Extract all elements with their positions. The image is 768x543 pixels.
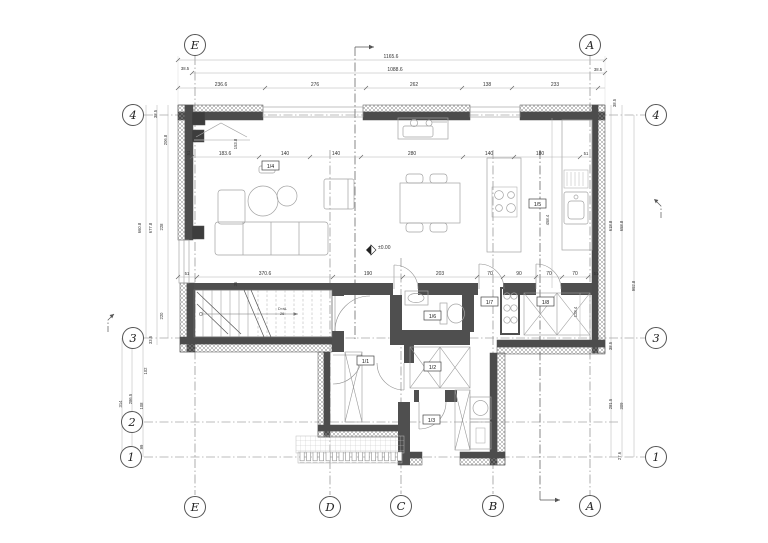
stair-break-lines [197, 290, 271, 337]
closet-x [455, 390, 470, 450]
room-label-bath: 1/6 [424, 311, 441, 320]
toilet [440, 303, 465, 324]
grid-bubble-bottom-D: D [320, 497, 341, 518]
floorplan-sheet: ±0.00 D×śL 26 1/4 1/5 1/6 1/7 1/8 1/1 1/… [0, 0, 768, 543]
dim: 153.8 [233, 138, 238, 149]
dim: 262 [410, 82, 419, 88]
room-label-hall2: 1/7 [481, 297, 498, 306]
dim: 35 [233, 281, 238, 286]
dim: 233 [551, 82, 560, 88]
grid-bubble-left-1: 1 [121, 447, 142, 468]
dim: 180 [536, 151, 545, 157]
grid-bubble-bottom-A: A [580, 496, 601, 517]
cooktop-burner [495, 191, 504, 200]
floor-plan-canvas: ±0.00 D×śL 26 1/4 1/5 1/6 1/7 1/8 1/1 1/… [0, 0, 768, 543]
dim: 38.5 [181, 66, 190, 71]
door-stair-hall [335, 296, 370, 331]
dim: 280 [408, 151, 417, 157]
grid-bubble-top-E: E [185, 35, 206, 56]
wall-top [178, 105, 605, 120]
svg-text:1: 1 [127, 450, 134, 464]
room-label-utility: 1/3 [423, 415, 440, 424]
svg-text:1/1: 1/1 [362, 359, 369, 365]
svg-text:1/6: 1/6 [429, 314, 436, 320]
dim: 140 [485, 151, 494, 157]
room-label-living: 1/4 [262, 161, 279, 170]
dim: 658.8 [619, 220, 624, 231]
grid-bubble-left-4: 4 [123, 105, 144, 126]
stairs [194, 290, 332, 337]
dim: 660.8 [137, 222, 142, 233]
room-label-entry: 1/1 [357, 356, 374, 365]
wall-entry-corr [404, 345, 414, 363]
svg-text:E: E [190, 500, 200, 514]
wall-rooms-top-2 [418, 283, 478, 295]
svg-text:1/7: 1/7 [486, 300, 493, 306]
dim: 203 [436, 271, 445, 277]
grid-bubble-bottom-E: E [185, 497, 206, 518]
grid-bubble-right-3: 3 [646, 328, 667, 349]
cooktop-burner [508, 192, 515, 199]
wall-right [592, 105, 605, 353]
svg-text:4: 4 [128, 108, 136, 122]
svg-text:2: 2 [127, 415, 135, 429]
svg-text:B: B [488, 499, 497, 513]
svg-text:1/5: 1/5 [534, 202, 541, 208]
grid-bubble-top-A: A [580, 35, 601, 56]
svg-text:A: A [585, 499, 594, 513]
svg-text:3: 3 [129, 331, 136, 345]
dim: 370.6 [259, 271, 272, 277]
svg-text:3: 3 [652, 331, 659, 345]
grid-bubble-right-1: 1 [646, 447, 667, 468]
svg-text:1/3: 1/3 [428, 418, 435, 424]
dim: 38.5 [153, 109, 158, 118]
dim: 276 [311, 82, 320, 88]
dim: 309 [619, 402, 624, 410]
grid-bubble-bottom-B: B [483, 496, 504, 517]
grid-bubble-right-4: 4 [646, 105, 667, 126]
dim: 128.4 [573, 306, 578, 317]
room-label-corridor: 1/2 [424, 362, 441, 371]
detail-arrow-left [108, 314, 114, 332]
dim: 314 [118, 400, 123, 408]
dim: 220 [159, 312, 164, 320]
dim: 27.6 [617, 451, 622, 460]
wall-rooms-top-1 [344, 283, 393, 295]
cooktop-burner [507, 204, 516, 213]
grid-bubble-bottom-C: C [391, 496, 412, 517]
dim: 90 [516, 271, 522, 277]
stair-note-1: D×śL [278, 307, 287, 311]
dim: 677.8 [148, 222, 153, 233]
dim: 33.5 [148, 335, 153, 344]
washer [470, 397, 491, 449]
dim: 51 [584, 151, 589, 156]
stair-note-2: 26 [280, 312, 284, 316]
dim: 190 [364, 271, 373, 277]
detail-arrow-right [654, 199, 661, 218]
svg-text:4: 4 [651, 108, 659, 122]
dim: 51 [594, 271, 599, 276]
svg-text:1/2: 1/2 [429, 365, 436, 371]
level-marker: ±0.00 [366, 245, 391, 255]
dim: 618.8 [608, 220, 613, 231]
dim: 38.5 [612, 98, 617, 107]
dim: 99 [139, 444, 144, 449]
dim: 38.5 [594, 67, 603, 72]
window-top-left [263, 107, 363, 117]
svg-text:1: 1 [652, 450, 659, 464]
level-value: ±0.00 [378, 245, 391, 251]
svg-text:A: A [585, 38, 594, 52]
dim: 140 [281, 151, 290, 157]
wall-bottom-right [497, 340, 605, 354]
wall-stair-top [194, 283, 332, 290]
dim: 1165.6 [384, 54, 399, 60]
wall-bath-bottom [390, 330, 470, 345]
window-left [179, 240, 189, 283]
dim: 236.6 [215, 82, 228, 88]
window-top-right [470, 107, 520, 117]
entrance-paving [296, 436, 404, 463]
grid-bubble-left-2: 2 [122, 412, 143, 433]
wall-hall-stair-b [332, 331, 344, 352]
room-label-kitchen: 1/5 [529, 199, 546, 208]
svg-text:1/8: 1/8 [542, 300, 549, 306]
sofa [215, 190, 328, 255]
dim: 286.5 [128, 393, 133, 404]
svg-text:C: C [397, 499, 406, 513]
door-corridor [377, 363, 404, 390]
dim: 70 [487, 271, 493, 277]
grid-bubble-left-3: 3 [123, 328, 144, 349]
dim: 102 [143, 367, 148, 375]
dim: 70 [572, 271, 578, 277]
kitchen-counter-right [562, 120, 592, 250]
wall-bottom-stair [180, 337, 332, 352]
armchair [324, 179, 354, 209]
dim: 51 [185, 271, 190, 276]
svg-text:D: D [324, 500, 334, 514]
wall-piers [192, 112, 205, 239]
kitchen-island [487, 158, 521, 252]
dim: 183.6 [219, 151, 232, 157]
dim: 206.8 [163, 134, 168, 145]
dim: 458.4 [545, 214, 550, 225]
wall-corr-util-a [414, 390, 419, 402]
wall-hall-stair-a [332, 283, 344, 296]
stair-note: D×śL 26 [278, 307, 287, 316]
cooktop-burner [496, 205, 503, 212]
dim: 108 [139, 402, 144, 410]
dim: 228 [159, 223, 164, 231]
wall-bath-hall [462, 295, 474, 332]
dim: 51 [186, 150, 191, 155]
dim-ticks [176, 58, 607, 279]
dim: 1088.6 [387, 67, 403, 73]
dim: 138 [483, 82, 492, 88]
svg-text:E: E [190, 38, 200, 52]
dining-table [400, 174, 460, 232]
svg-text:1/4: 1/4 [267, 164, 274, 170]
dim: 38.5 [608, 341, 613, 350]
dim: 992.8 [631, 280, 636, 291]
dim: 281.5 [608, 398, 613, 409]
kitchen-sink-top [398, 118, 448, 139]
room-label-closet: 1/8 [537, 297, 554, 306]
dim: 140 [332, 151, 341, 157]
dim: 70 [546, 271, 552, 277]
coffee-tables [248, 186, 297, 216]
